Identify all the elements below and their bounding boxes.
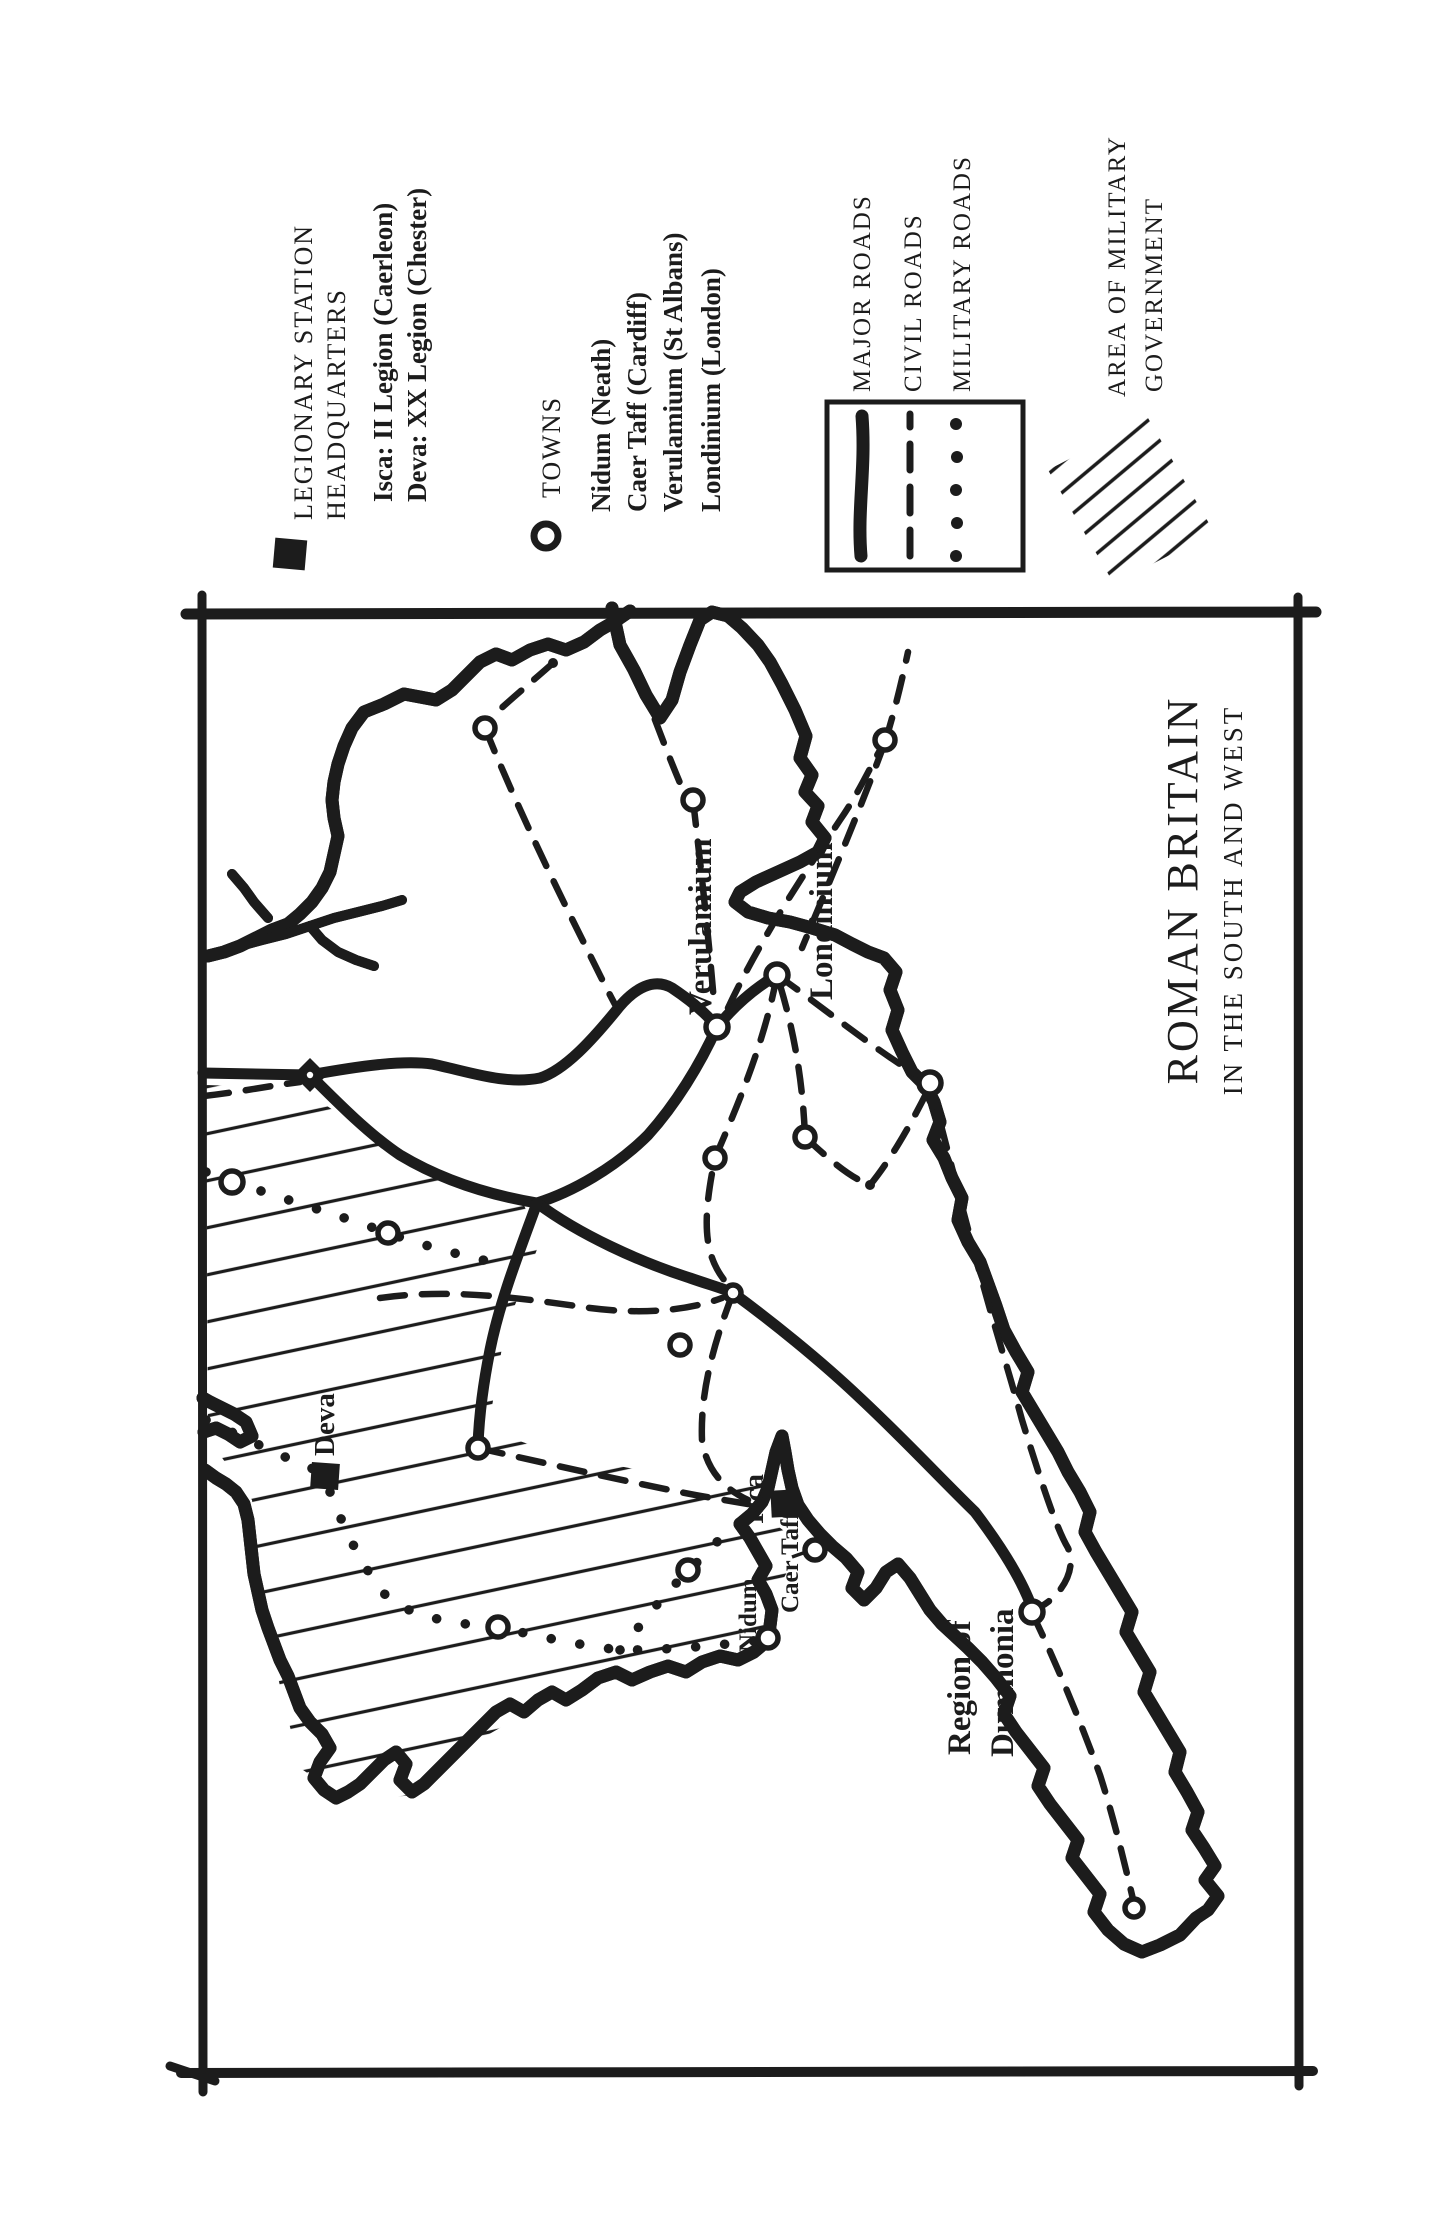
legend-legionary-entry-isca: Isca: II Legion (Caerleon)	[368, 203, 398, 502]
roman-britain-map-page: Verulamium Londinium Deva Isca Caer Taff…	[0, 0, 1445, 2233]
map-title-block: ROMAN BRITAIN IN THE SOUTH AND WEST	[1158, 696, 1248, 1096]
verulamium-label: Verulamium	[683, 838, 719, 1015]
legend-civil-roads-label: CIVIL ROADS	[900, 213, 927, 392]
dumnonia-label-line2: Dumnonia	[985, 1608, 1021, 1757]
legend-town-entry-caertaff: Caer Taff (Cardiff)	[622, 292, 652, 512]
deva-label: Deva	[309, 1393, 341, 1456]
legend-legionary-square-icon	[273, 538, 307, 571]
legend-town-circle-icon	[534, 524, 558, 548]
nidum-label: Nidum	[735, 1578, 762, 1652]
legend-military-area-line2: GOVERNMENT	[1141, 197, 1168, 392]
map-title: ROMAN BRITAIN	[1158, 696, 1207, 1085]
londinium-label: Londinium	[804, 842, 840, 1000]
legend-major-roads-label: MAJOR ROADS	[849, 194, 876, 392]
legend-towns-title: TOWNS	[537, 396, 566, 498]
legend-hatch-swatch	[1048, 418, 1214, 584]
legend-town-entry-londinium: Londinium (London)	[696, 268, 726, 512]
legend-legionary-title-line1: LEGIONARY STATION	[289, 224, 318, 520]
legend-major-road-sample	[860, 416, 863, 556]
legend-military-area-line1: AREA OF MILITARY	[1104, 135, 1131, 397]
legend-legionary-entry-deva: Deva: XX Legion (Chester)	[402, 188, 432, 502]
map-subtitle: IN THE SOUTH AND WEST	[1218, 705, 1248, 1096]
legend-town-entry-nidum: Nidum (Neath)	[586, 339, 616, 512]
caer-taff-label: Caer Taff	[777, 1511, 804, 1613]
dumnonia-label-line1: Region of	[942, 1619, 978, 1755]
map-figure: Verulamium Londinium Deva Isca Caer Taff…	[0, 0, 1445, 2233]
legend-military-road-sample	[950, 418, 963, 562]
legend: LEGIONARY STATION HEADQUARTERS Isca: II …	[273, 135, 1214, 584]
legend-military-roads-label: MILITARY ROADS	[949, 155, 976, 392]
isca-label: Isca	[738, 1474, 770, 1524]
deva-square-icon	[310, 1462, 340, 1490]
legend-town-entry-verulamium: Verulamium (St Albans)	[658, 232, 688, 512]
legend-roads-box	[827, 402, 1023, 570]
legend-legionary-title-line2: HEADQUARTERS	[322, 288, 351, 520]
